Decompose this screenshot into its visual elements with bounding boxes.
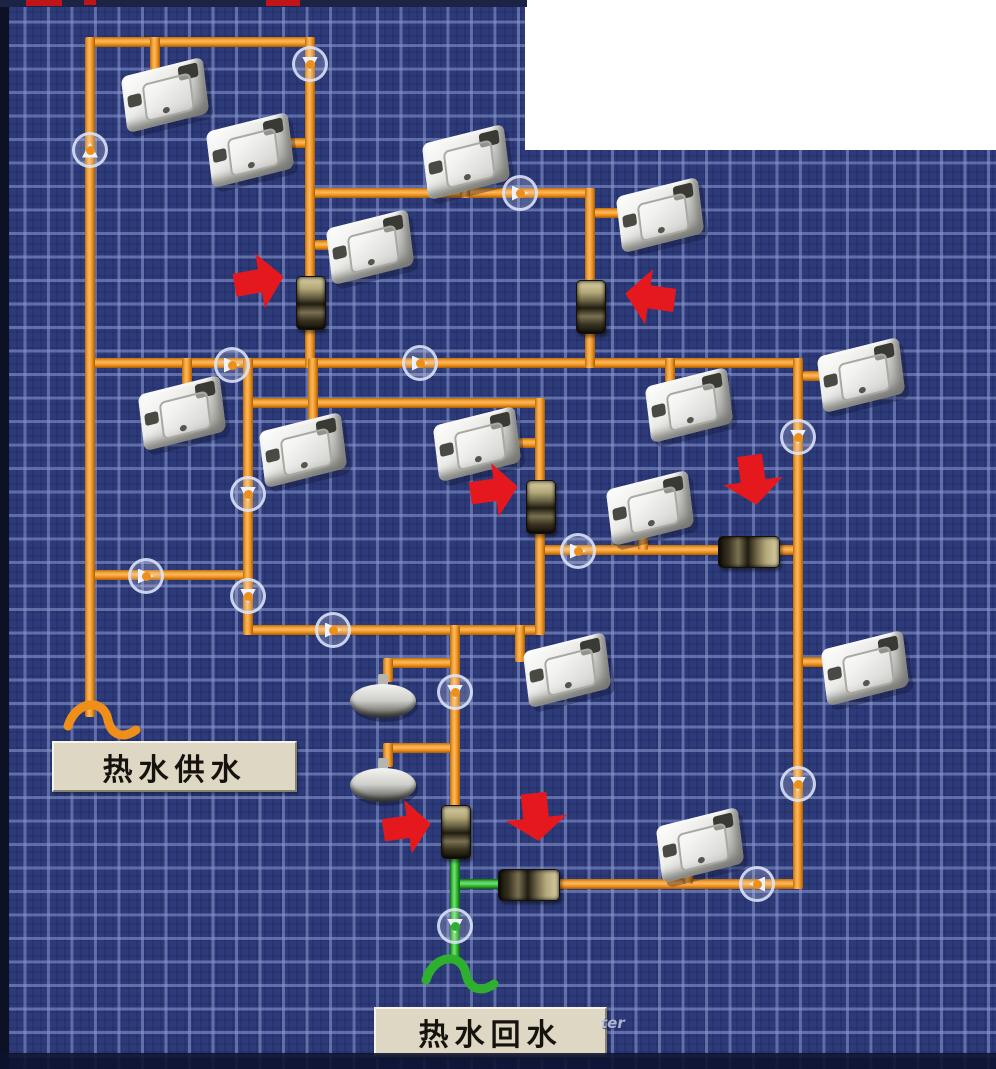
return-pipe-break-icon <box>416 948 500 1004</box>
flow-pipe-dot <box>753 880 762 889</box>
screen-edge-artifact <box>84 0 96 5</box>
valve-icon[interactable] <box>296 276 326 330</box>
valve-icon[interactable] <box>526 480 556 534</box>
sink-icon <box>326 209 414 285</box>
flow-pipe-dot <box>794 780 803 789</box>
shower-head-icon <box>350 766 416 808</box>
flow-direction-icon <box>230 578 266 614</box>
sink-fitting <box>622 213 637 228</box>
flow-direction-icon <box>230 476 266 512</box>
shower-head-icon <box>350 682 416 724</box>
hmi-piping-screen: 热水供水 热水回水 ter <box>0 0 996 1069</box>
sink-fitting <box>265 448 280 463</box>
supply-pipe-segment <box>248 625 545 635</box>
supply-pipe-segment <box>248 398 545 408</box>
flow-pipe-dot <box>451 688 460 697</box>
top-edge-strip <box>0 0 527 7</box>
flow-pipe-dot <box>794 433 803 442</box>
supply-pipe-segment <box>90 570 253 580</box>
flow-direction-icon <box>502 175 538 211</box>
sink-basin <box>838 352 891 402</box>
sink-icon <box>817 337 905 413</box>
sink-fitting <box>651 403 666 418</box>
valve-icon[interactable] <box>576 280 606 334</box>
supply-pipe-segment <box>90 37 315 47</box>
flow-direction-icon <box>780 766 816 802</box>
flow-direction-icon <box>402 345 438 381</box>
flow-direction-icon <box>72 132 108 168</box>
bottom-edge-strip <box>0 1053 996 1069</box>
sink-fitting <box>439 442 454 457</box>
sink-fitting <box>612 506 627 521</box>
flow-pipe-dot <box>228 361 237 370</box>
supply-pipe-segment <box>585 188 595 368</box>
sink-fitting <box>144 411 159 426</box>
valve-icon[interactable] <box>441 805 471 859</box>
sink-fitting <box>529 668 544 683</box>
sink-basin <box>544 647 597 697</box>
flow-pipe-dot <box>306 60 315 69</box>
sink-icon <box>645 367 733 443</box>
flow-direction-icon <box>437 908 473 944</box>
flow-pipe-dot <box>244 592 253 601</box>
sink-basin <box>347 224 400 274</box>
sink-icon <box>616 177 704 253</box>
flow-pipe-dot <box>86 146 95 155</box>
alarm-arrow-icon <box>229 248 288 314</box>
sink-fitting <box>823 373 838 388</box>
flow-pipe-dot <box>416 359 425 368</box>
supply-label: 热水供水 <box>52 741 297 792</box>
sink-basin <box>842 645 895 695</box>
sink-fitting <box>212 148 227 163</box>
sink-fitting <box>428 160 443 175</box>
flow-direction-icon <box>315 612 351 648</box>
flow-direction-icon <box>560 533 596 569</box>
sink-basin <box>627 485 680 535</box>
supply-pipe-segment <box>90 358 803 368</box>
left-edge-strip <box>0 0 9 1069</box>
flow-direction-icon <box>214 347 250 383</box>
alarm-arrow-icon <box>502 790 571 844</box>
supply-label-text: 热水供水 <box>103 745 247 789</box>
flow-pipe-dot <box>451 922 460 931</box>
flow-pipe-dot <box>329 626 338 635</box>
sink-basin <box>637 192 690 242</box>
sink-basin <box>159 390 212 440</box>
shower-dome <box>350 768 416 802</box>
screen-edge-artifact <box>26 0 62 6</box>
sink-basin <box>454 421 507 471</box>
flow-pipe-dot <box>244 490 253 499</box>
sink-fitting <box>332 245 347 260</box>
sink-basin <box>443 139 496 189</box>
sink-icon <box>121 57 209 133</box>
sink-basin <box>677 822 730 872</box>
sink-fitting <box>127 93 142 108</box>
sink-icon <box>259 412 347 488</box>
flow-direction-icon <box>739 866 775 902</box>
alarm-arrow-icon <box>621 265 679 329</box>
return-label: 热水回水 <box>374 1007 607 1057</box>
sink-basin <box>142 72 195 122</box>
sink-icon <box>138 375 226 451</box>
sink-icon <box>821 630 909 706</box>
sink-icon <box>656 807 744 883</box>
flow-direction-icon <box>437 674 473 710</box>
flow-direction-icon <box>780 419 816 455</box>
watermark-text: ter <box>600 1014 625 1032</box>
sink-basin <box>280 427 333 477</box>
sink-fitting <box>662 843 677 858</box>
shower-dome <box>350 684 416 718</box>
supply-pipe-segment <box>665 358 675 382</box>
flow-direction-icon <box>292 46 328 82</box>
flow-pipe-dot <box>142 572 151 581</box>
screen-edge-artifact <box>266 0 300 6</box>
return-label-text: 热水回水 <box>419 1010 563 1054</box>
alarm-arrow-icon <box>719 451 787 509</box>
sink-fitting <box>827 666 842 681</box>
white-cutout-region <box>525 0 996 150</box>
sink-basin <box>227 127 280 177</box>
flow-pipe-dot <box>574 547 583 556</box>
sink-icon <box>523 632 611 708</box>
sink-icon <box>433 406 521 482</box>
sink-icon <box>206 112 294 188</box>
sink-icon <box>606 470 694 546</box>
valve-icon[interactable] <box>498 869 560 901</box>
sink-basin <box>666 382 719 432</box>
flow-direction-icon <box>128 558 164 594</box>
flow-pipe-dot <box>516 189 525 198</box>
valve-icon[interactable] <box>718 536 780 568</box>
